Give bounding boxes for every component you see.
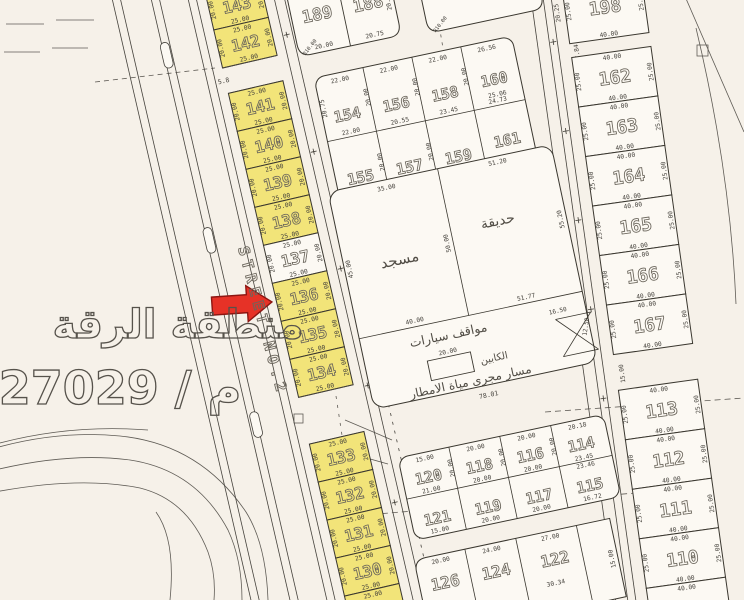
plot-number-111: 111 bbox=[658, 497, 693, 522]
plot-number-165: 165 bbox=[618, 214, 653, 239]
cadastral-map-canvas: 14325.0025.0020.0020.0014225.0025.0020.0… bbox=[0, 0, 744, 600]
plot-number-113: 113 bbox=[644, 398, 679, 423]
plan-number: 27029 / م bbox=[0, 361, 241, 415]
plot-number-162: 162 bbox=[597, 65, 632, 90]
plot-number-167: 167 bbox=[632, 313, 667, 338]
plot-number-163: 163 bbox=[604, 115, 639, 140]
plot-number-110: 110 bbox=[665, 547, 700, 572]
plot-number-166: 166 bbox=[625, 263, 660, 288]
plot-number-164: 164 bbox=[611, 164, 646, 189]
plot-number-112: 112 bbox=[651, 448, 686, 473]
dim-label: 25.00 bbox=[636, 0, 646, 11]
